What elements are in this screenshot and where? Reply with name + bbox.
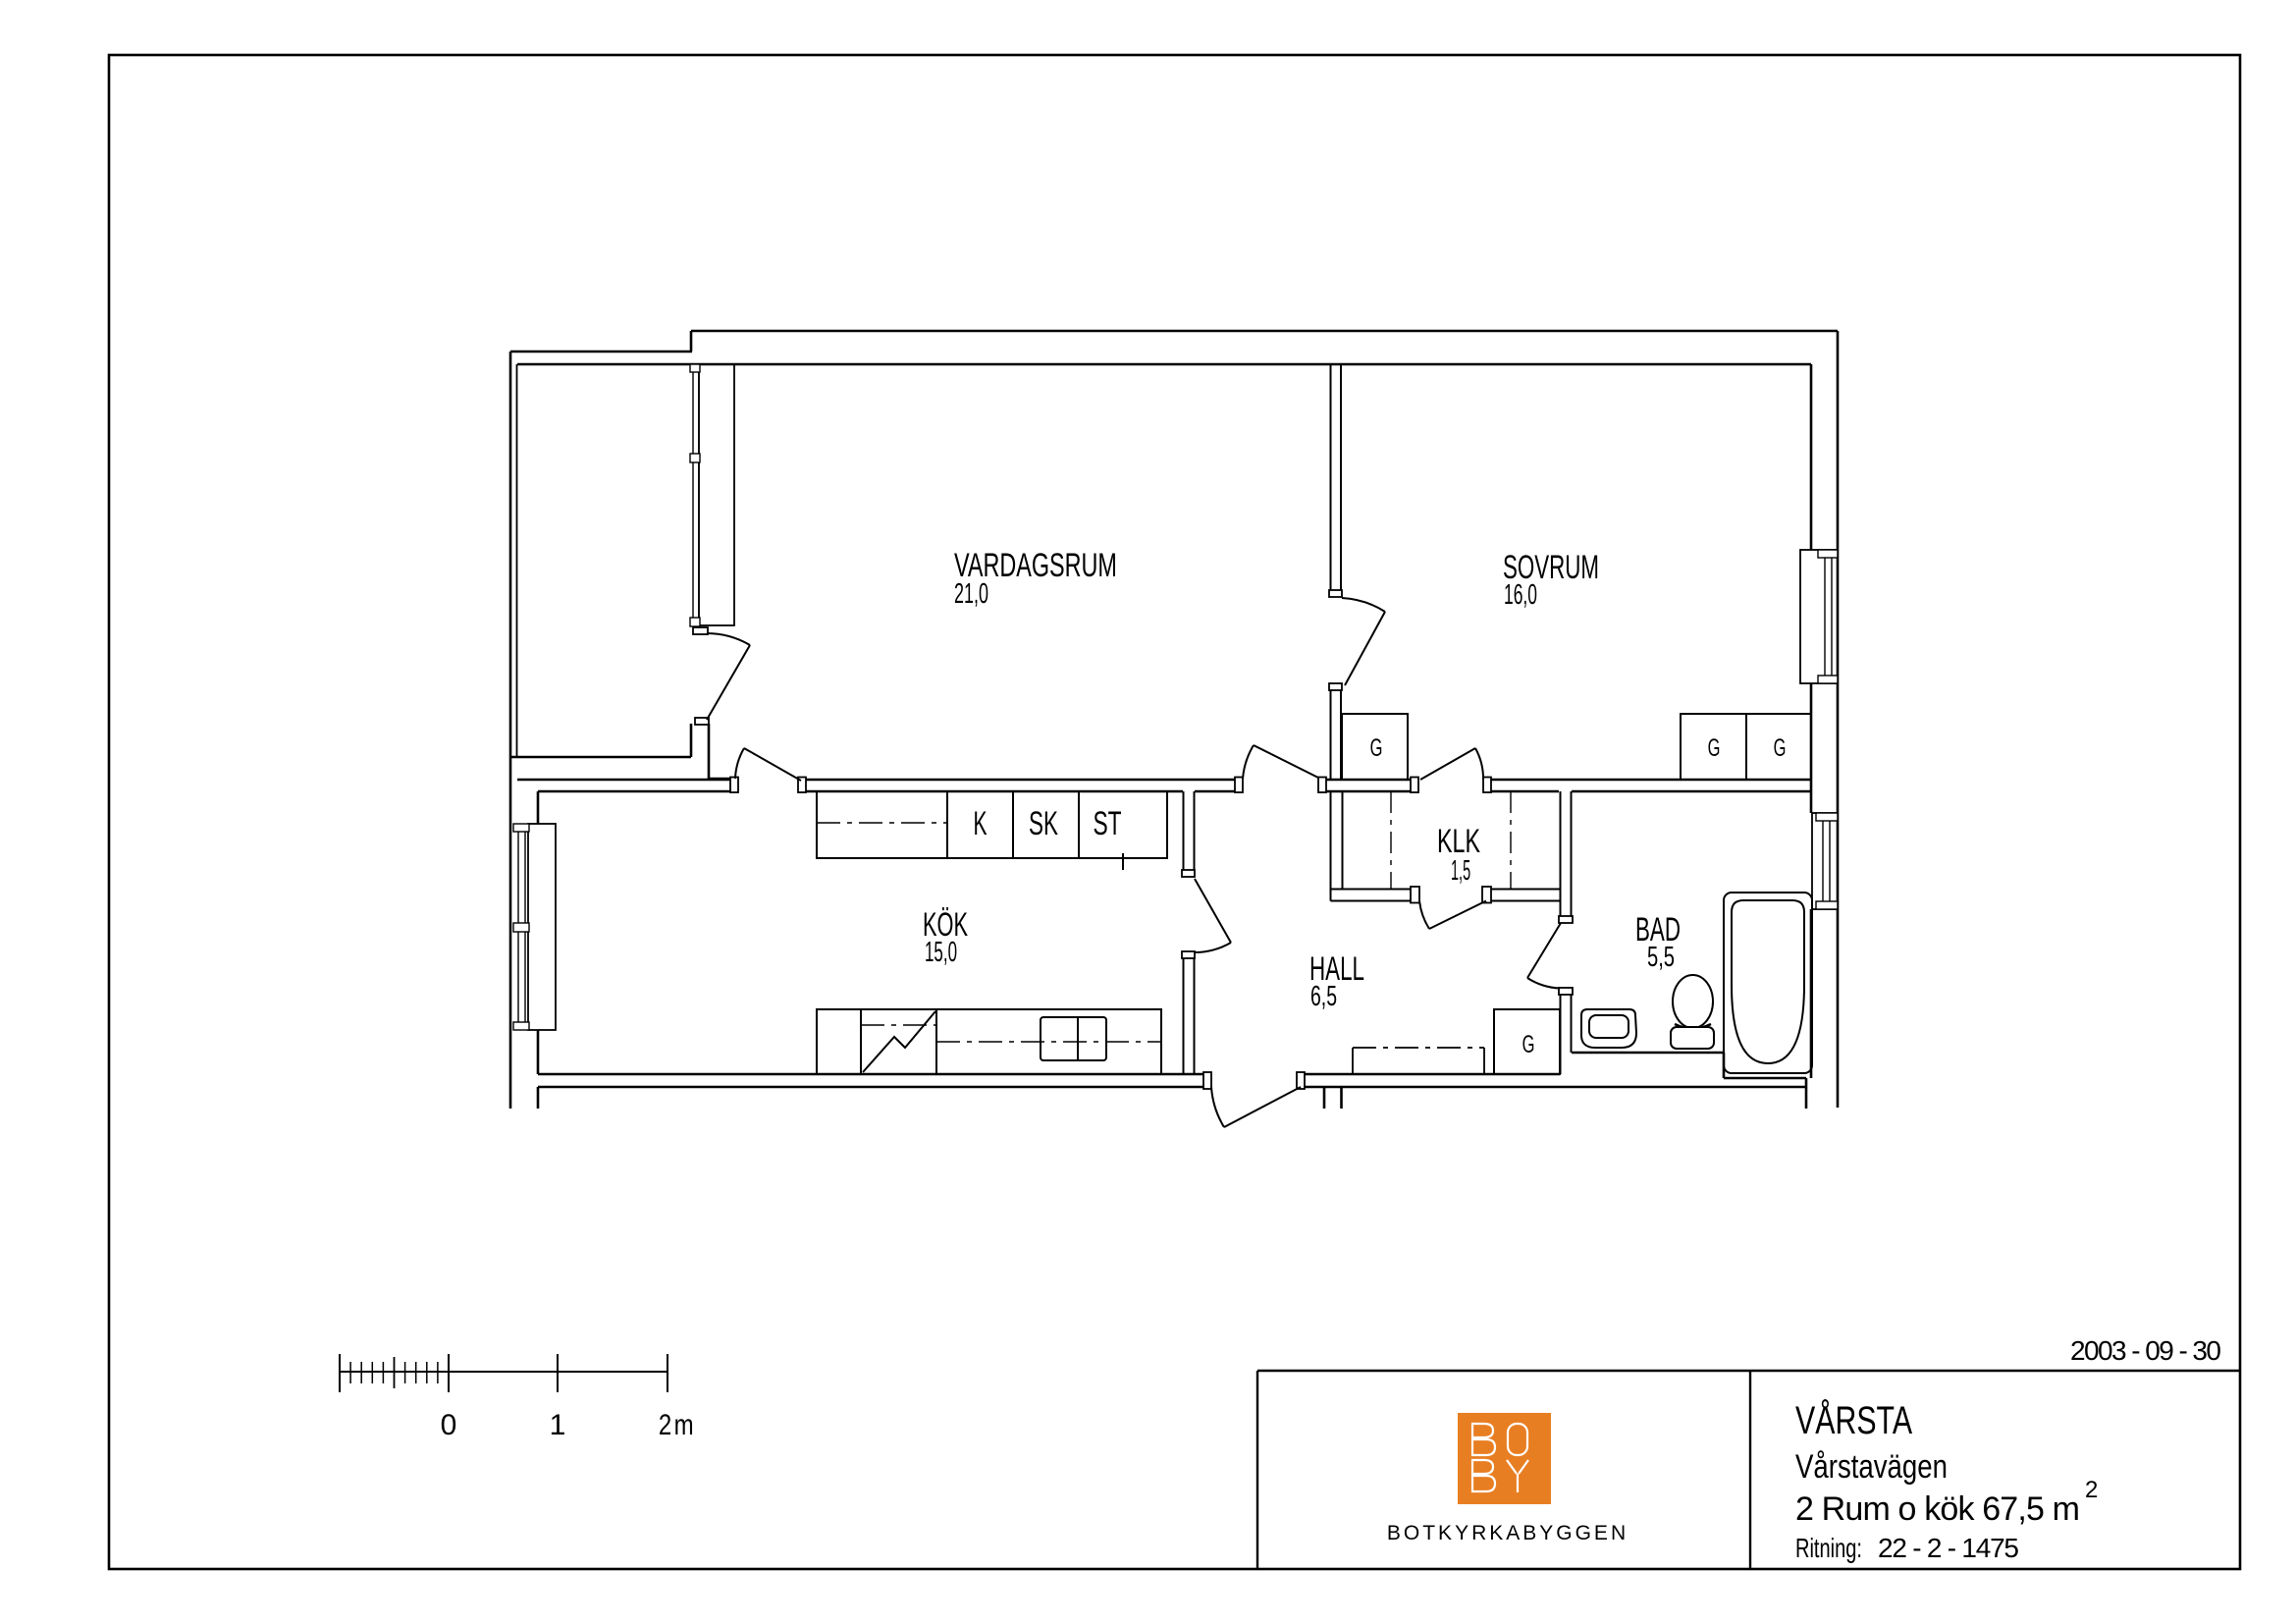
svg-text:ST: ST: [1093, 806, 1121, 843]
svg-text:K: K: [973, 804, 987, 841]
svg-text:6,5: 6,5: [1310, 981, 1337, 1012]
svg-text:G: G: [1522, 1032, 1535, 1058]
svg-text:Vårstavägen: Vårstavägen: [1795, 1447, 1948, 1485]
svg-text:15,0: 15,0: [925, 936, 957, 968]
svg-text:21,0: 21,0: [954, 578, 988, 610]
svg-text:1,5: 1,5: [1451, 853, 1470, 886]
svg-text:G: G: [1774, 735, 1787, 762]
svg-text:2m: 2m: [659, 1407, 696, 1440]
svg-text:2 Rum o kök 67,5 m: 2 Rum o kök 67,5 m: [1795, 1490, 2080, 1528]
svg-text:1: 1: [550, 1409, 566, 1441]
svg-text:22 - 2 - 1475: 22 - 2 - 1475: [1878, 1533, 2019, 1563]
svg-text:2: 2: [2085, 1477, 2098, 1503]
svg-text:16,0: 16,0: [1504, 579, 1537, 612]
svg-text:2003 - 09 - 30: 2003 - 09 - 30: [2070, 1335, 2221, 1366]
svg-text:G: G: [1708, 735, 1721, 762]
svg-text:BOTKYRKABYGGEN: BOTKYRKABYGGEN: [1387, 1522, 1629, 1544]
svg-text:5,5: 5,5: [1647, 941, 1675, 973]
svg-text:SK: SK: [1029, 805, 1058, 842]
svg-text:VÅRSTA: VÅRSTA: [1795, 1398, 1912, 1442]
svg-text:0: 0: [441, 1409, 457, 1441]
svg-text:G: G: [1370, 735, 1383, 762]
svg-text:Ritning:: Ritning:: [1795, 1534, 1862, 1564]
